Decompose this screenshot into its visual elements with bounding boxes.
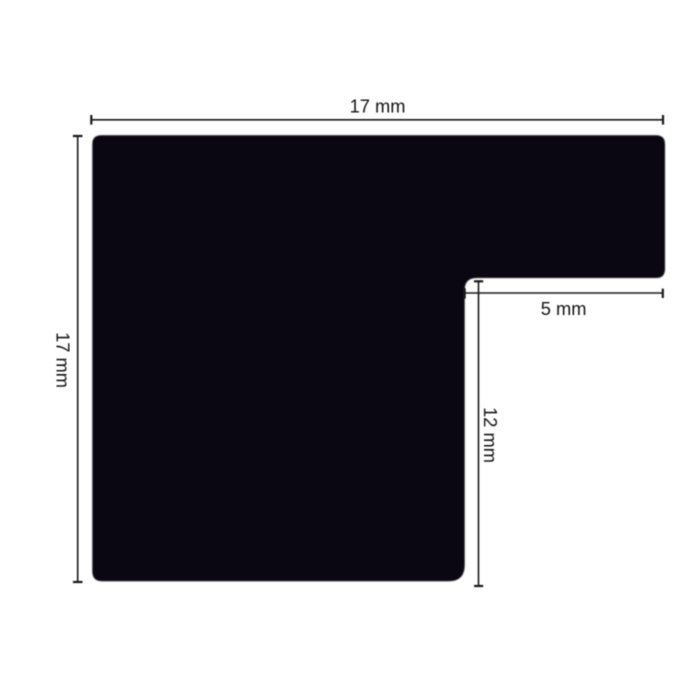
svg-text:5 mm: 5 mm: [541, 298, 587, 319]
svg-text:17 mm: 17 mm: [350, 96, 406, 117]
svg-text:12 mm: 12 mm: [480, 407, 501, 463]
svg-text:17 mm: 17 mm: [52, 332, 73, 388]
